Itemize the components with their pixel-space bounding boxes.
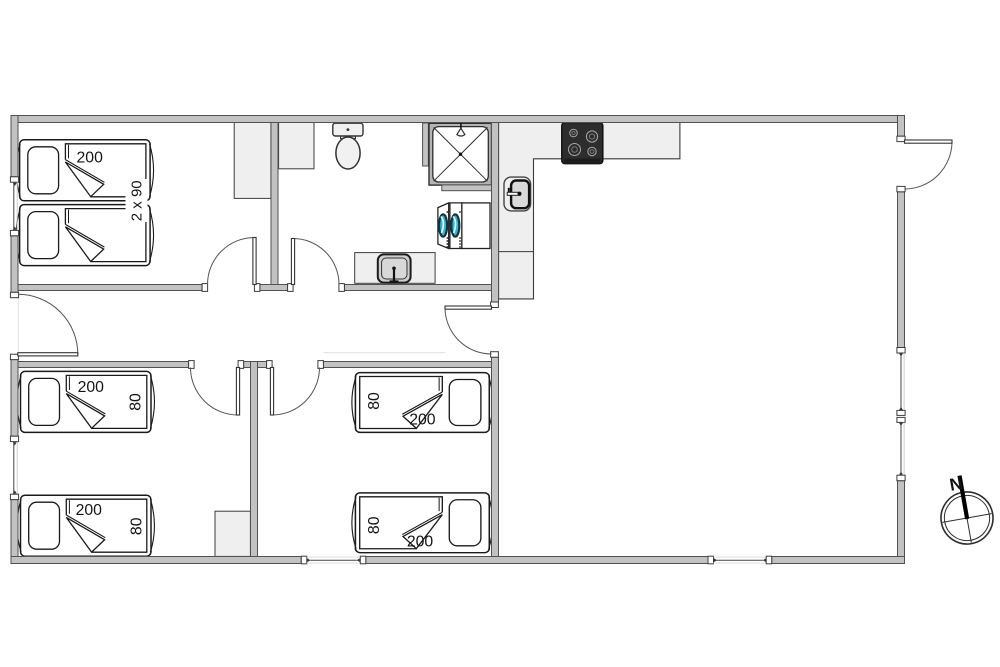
svg-text:200: 200 (409, 412, 436, 429)
svg-text:200: 200 (77, 149, 104, 166)
svg-text:80: 80 (366, 516, 383, 534)
svg-text:80: 80 (129, 517, 146, 535)
svg-text:80: 80 (128, 393, 145, 411)
svg-text:200: 200 (407, 534, 434, 551)
svg-text:2 x 90: 2 x 90 (129, 180, 146, 221)
svg-text:80: 80 (366, 392, 383, 410)
svg-text:200: 200 (76, 502, 103, 519)
svg-text:200: 200 (78, 379, 105, 396)
